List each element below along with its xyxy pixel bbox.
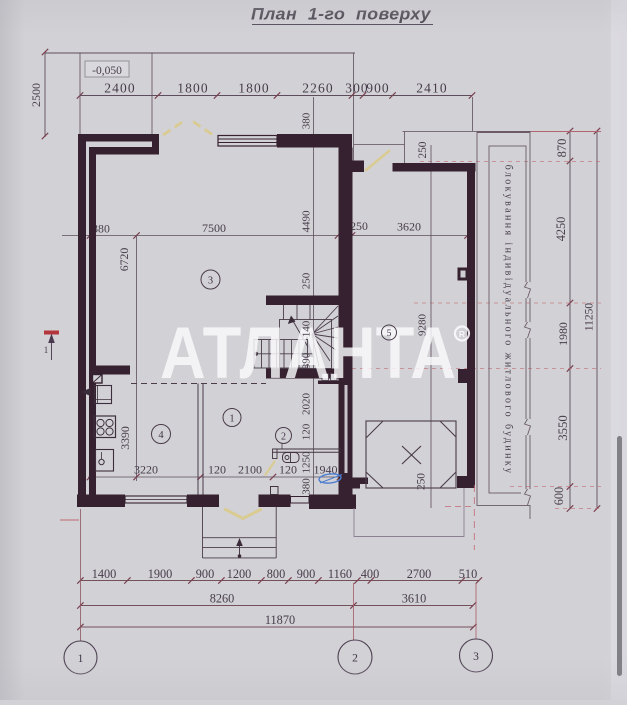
svg-text:3620: 3620: [397, 220, 421, 234]
svg-text:3: 3: [473, 651, 479, 663]
svg-text:900: 900: [366, 81, 390, 96]
svg-text:1250: 1250: [301, 451, 313, 474]
svg-text:380: 380: [301, 478, 313, 495]
svg-text:400: 400: [361, 567, 379, 581]
svg-text:1200: 1200: [227, 567, 252, 581]
svg-text:2400: 2400: [104, 81, 135, 96]
svg-text:План 1-го поверху: План 1-го поверху: [251, 6, 431, 24]
svg-text:6720: 6720: [117, 248, 131, 272]
svg-text:3: 3: [208, 276, 213, 287]
svg-text:250: 250: [417, 141, 429, 158]
svg-text:900: 900: [196, 567, 214, 581]
svg-text:1980: 1980: [556, 322, 570, 346]
svg-text:870: 870: [555, 139, 569, 158]
svg-text:1160: 1160: [328, 567, 352, 581]
svg-text:9280: 9280: [417, 314, 429, 337]
svg-text:1400: 1400: [92, 567, 117, 581]
svg-text:-0,050: -0,050: [92, 65, 122, 77]
svg-text:2: 2: [352, 653, 358, 665]
svg-text:1800: 1800: [238, 81, 269, 96]
svg-text:2100: 2100: [238, 463, 262, 477]
svg-text:8260: 8260: [210, 592, 235, 606]
svg-text:2500: 2500: [29, 83, 43, 107]
svg-text:7500: 7500: [202, 221, 226, 235]
svg-text:2410: 2410: [416, 81, 447, 96]
svg-text:1: 1: [229, 414, 234, 425]
svg-text:2: 2: [281, 432, 286, 443]
svg-text:3390: 3390: [118, 426, 132, 450]
svg-text:2700: 2700: [407, 567, 432, 581]
svg-text:5: 5: [387, 329, 392, 339]
svg-text:блокування індивідуального ж: блокування індивідуального житлового буд…: [503, 165, 514, 476]
svg-text:600: 600: [552, 487, 566, 505]
svg-text:2020: 2020: [301, 393, 313, 416]
svg-text:120: 120: [301, 423, 313, 440]
svg-text:3220: 3220: [134, 463, 158, 477]
svg-text:4490: 4490: [301, 210, 313, 233]
svg-text:250: 250: [416, 473, 428, 490]
svg-text:3610: 3610: [402, 592, 427, 606]
svg-text:390: 390: [301, 352, 313, 369]
svg-text:1800: 1800: [177, 81, 208, 96]
svg-text:2260: 2260: [302, 81, 333, 96]
svg-text:1900: 1900: [148, 567, 173, 581]
svg-text:380: 380: [301, 112, 313, 129]
svg-text:1: 1: [78, 653, 84, 665]
svg-text:140: 140: [301, 320, 313, 337]
svg-text:250: 250: [301, 272, 313, 289]
svg-text:250: 250: [350, 219, 368, 233]
svg-text:11870: 11870: [265, 613, 295, 627]
svg-text:4250: 4250: [554, 217, 568, 242]
svg-text:900: 900: [297, 567, 315, 581]
svg-text:R: R: [459, 329, 465, 339]
svg-text:120: 120: [279, 463, 297, 477]
svg-text:4: 4: [158, 430, 164, 441]
svg-text:800: 800: [267, 567, 285, 581]
svg-text:1: 1: [44, 345, 49, 355]
svg-text:120: 120: [208, 463, 226, 477]
svg-text:11250: 11250: [584, 303, 596, 332]
svg-text:510: 510: [459, 567, 477, 581]
svg-text:3550: 3550: [556, 415, 570, 441]
